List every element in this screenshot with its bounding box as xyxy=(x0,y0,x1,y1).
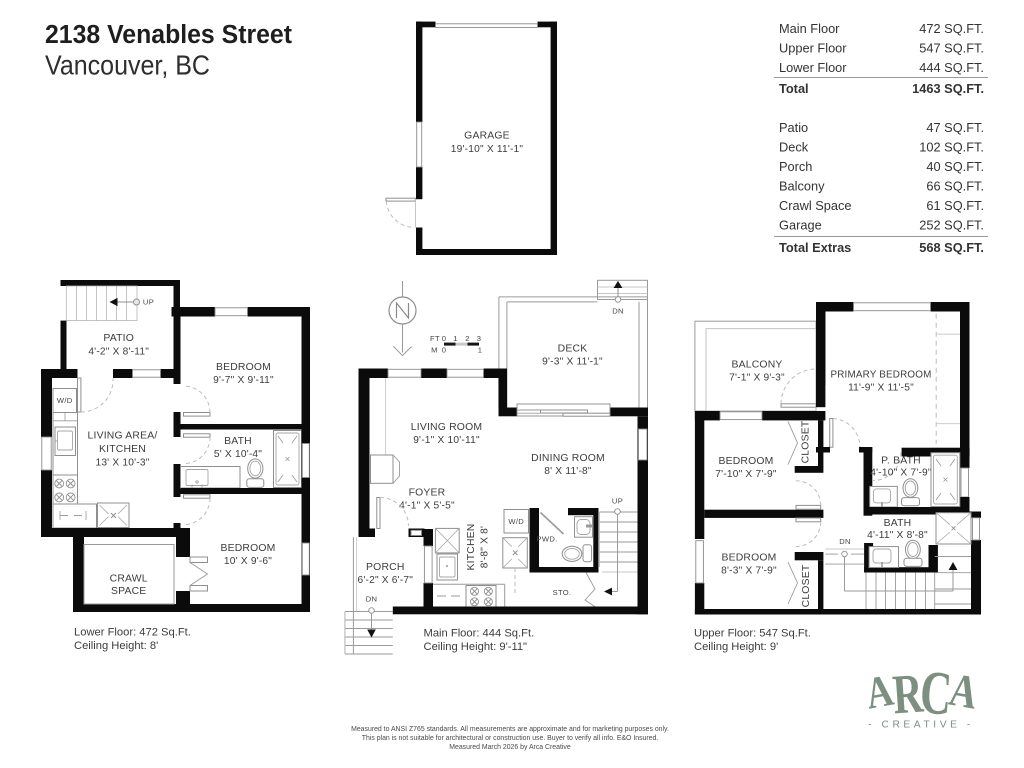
svg-text:C: C xyxy=(918,657,954,729)
svg-text:FOYER: FOYER xyxy=(409,488,446,499)
svg-text:5' X 10'-4": 5' X 10'-4" xyxy=(214,449,262,460)
svg-text:568 SQ.FT.: 568 SQ.FT. xyxy=(919,240,984,255)
svg-text:W/D: W/D xyxy=(57,396,73,405)
svg-text:CRAWL: CRAWL xyxy=(110,574,148,585)
svg-text:LIVING AREA/: LIVING AREA/ xyxy=(88,431,158,442)
svg-text:Measured March 2026 by Arca Cr: Measured March 2026 by Arca Creative xyxy=(449,744,571,751)
svg-text:Ceiling Height: 9'-11": Ceiling Height: 9'-11" xyxy=(424,641,528,653)
svg-text:Measured to ANSI Z765 standard: Measured to ANSI Z765 standards. All mea… xyxy=(351,726,669,733)
svg-text:Deck: Deck xyxy=(779,140,809,155)
svg-text:47 SQ.FT.: 47 SQ.FT. xyxy=(926,120,984,135)
svg-text:66 SQ.FT.: 66 SQ.FT. xyxy=(926,179,984,194)
svg-text:SPACE: SPACE xyxy=(111,586,146,597)
svg-text:Porch: Porch xyxy=(779,159,812,174)
svg-text:PWD.: PWD. xyxy=(536,535,557,544)
svg-text:3: 3 xyxy=(477,334,482,343)
svg-text:DINING ROOM: DINING ROOM xyxy=(531,453,605,464)
svg-text:547 SQ.FT.: 547 SQ.FT. xyxy=(919,41,984,56)
svg-text:19'-10" X 11'-1": 19'-10" X 11'-1" xyxy=(451,144,524,155)
svg-text:252 SQ.FT.: 252 SQ.FT. xyxy=(919,218,984,233)
svg-text:4'-2" X 8'-11": 4'-2" X 8'-11" xyxy=(88,347,149,358)
svg-text:Ceiling Height: 8': Ceiling Height: 8' xyxy=(74,640,158,652)
svg-text:61 SQ.FT.: 61 SQ.FT. xyxy=(926,198,984,213)
svg-text:7'-1" X 9'-3": 7'-1" X 9'-3" xyxy=(729,373,785,384)
svg-text:KITCHEN: KITCHEN xyxy=(466,523,477,570)
svg-text:FT: FT xyxy=(430,334,440,343)
svg-text:PORCH: PORCH xyxy=(366,562,405,573)
svg-text:Vancouver, BC: Vancouver, BC xyxy=(45,50,210,81)
svg-text:11'-9" X 11'-5": 11'-9" X 11'-5" xyxy=(848,383,914,394)
svg-text:BATH: BATH xyxy=(224,436,252,447)
svg-text:2138 Venables Street: 2138 Venables Street xyxy=(45,21,292,49)
svg-text:8' X 11'-8": 8' X 11'-8" xyxy=(544,466,592,477)
svg-text:444 SQ.FT.: 444 SQ.FT. xyxy=(919,60,984,75)
svg-text:4'-11" X 8'-8": 4'-11" X 8'-8" xyxy=(867,530,928,541)
svg-text:This plan is not suitable for: This plan is not suitable for architectu… xyxy=(362,735,659,742)
svg-text:1: 1 xyxy=(453,334,458,343)
svg-text:BEDROOM: BEDROOM xyxy=(220,543,275,554)
svg-text:P. BATH: P. BATH xyxy=(881,456,921,467)
svg-text:DN: DN xyxy=(839,537,851,546)
svg-text:Lower Floor: 472 Sq.Ft.: Lower Floor: 472 Sq.Ft. xyxy=(74,627,191,639)
svg-text:BEDROOM: BEDROOM xyxy=(721,553,776,564)
svg-text:8'-8" X 8': 8'-8" X 8' xyxy=(480,526,491,568)
svg-text:DN: DN xyxy=(612,307,624,316)
svg-text:9'-1" X 10'-11": 9'-1" X 10'-11" xyxy=(413,435,480,446)
svg-text:8'-3" X 7'-9": 8'-3" X 7'-9" xyxy=(721,566,777,577)
svg-text:102 SQ.FT.: 102 SQ.FT. xyxy=(919,140,984,155)
svg-text:4'-1" X 5'-5": 4'-1" X 5'-5" xyxy=(399,501,455,512)
svg-text:9'-7" X 9'-11": 9'-7" X 9'-11" xyxy=(213,375,274,386)
svg-text:0: 0 xyxy=(442,346,447,355)
svg-text:CLOSET: CLOSET xyxy=(801,564,812,607)
svg-text:BEDROOM: BEDROOM xyxy=(718,456,773,467)
svg-text:M: M xyxy=(431,346,438,355)
svg-text:1: 1 xyxy=(478,346,483,355)
svg-text:Total Extras: Total Extras xyxy=(779,240,851,255)
svg-text:UP: UP xyxy=(612,497,623,506)
svg-text:DN: DN xyxy=(366,595,378,604)
svg-text:BALCONY: BALCONY xyxy=(731,360,782,371)
svg-text:2: 2 xyxy=(465,334,470,343)
svg-text:Balcony: Balcony xyxy=(779,179,825,194)
svg-text:Garage: Garage xyxy=(779,218,822,233)
svg-text:BATH: BATH xyxy=(884,518,912,529)
svg-text:CLOSET: CLOSET xyxy=(801,420,812,463)
svg-text:LIVING ROOM: LIVING ROOM xyxy=(411,422,482,433)
svg-text:GARAGE: GARAGE xyxy=(464,131,510,142)
svg-text:Total: Total xyxy=(779,81,809,96)
svg-text:Ceiling Height: 9': Ceiling Height: 9' xyxy=(694,641,778,653)
svg-text:9'-3" X 11'-1": 9'-3" X 11'-1" xyxy=(542,357,603,368)
svg-text:DECK: DECK xyxy=(558,344,588,355)
svg-text:STO.: STO. xyxy=(553,588,572,597)
svg-text:Upper Floor: 547 Sq.Ft.: Upper Floor: 547 Sq.Ft. xyxy=(694,628,811,640)
svg-text:0: 0 xyxy=(442,334,447,343)
svg-text:1463 SQ.FT.: 1463 SQ.FT. xyxy=(912,81,984,96)
svg-text:7'-10" X 7'-9": 7'-10" X 7'-9" xyxy=(715,469,777,480)
svg-text:Main Floor: 444 Sq.Ft.: Main Floor: 444 Sq.Ft. xyxy=(424,628,535,640)
svg-text:BEDROOM: BEDROOM xyxy=(216,362,271,373)
svg-text:Patio: Patio xyxy=(779,120,808,135)
svg-text:KITCHEN: KITCHEN xyxy=(99,444,146,455)
svg-text:Crawl Space: Crawl Space xyxy=(779,198,852,213)
svg-text:- CREATIVE -: - CREATIVE - xyxy=(868,720,974,731)
svg-text:PATIO: PATIO xyxy=(103,333,134,344)
svg-text:472 SQ.FT.: 472 SQ.FT. xyxy=(919,21,984,36)
svg-text:40 SQ.FT.: 40 SQ.FT. xyxy=(926,159,984,174)
svg-text:UP: UP xyxy=(143,298,154,307)
svg-text:W/D: W/D xyxy=(508,517,524,526)
svg-text:Main Floor: Main Floor xyxy=(779,21,840,36)
svg-text:PRIMARY BEDROOM: PRIMARY BEDROOM xyxy=(831,370,932,381)
svg-text:Lower Floor: Lower Floor xyxy=(779,60,847,75)
svg-text:13' X 10'-3": 13' X 10'-3" xyxy=(95,458,149,469)
svg-text:4'-10" X 7'-9": 4'-10" X 7'-9" xyxy=(870,468,932,479)
svg-text:10' X 9'-6": 10' X 9'-6" xyxy=(224,556,272,567)
svg-text:Upper Floor: Upper Floor xyxy=(779,41,847,56)
svg-text:6'-2" X 6'-7": 6'-2" X 6'-7" xyxy=(357,575,413,586)
